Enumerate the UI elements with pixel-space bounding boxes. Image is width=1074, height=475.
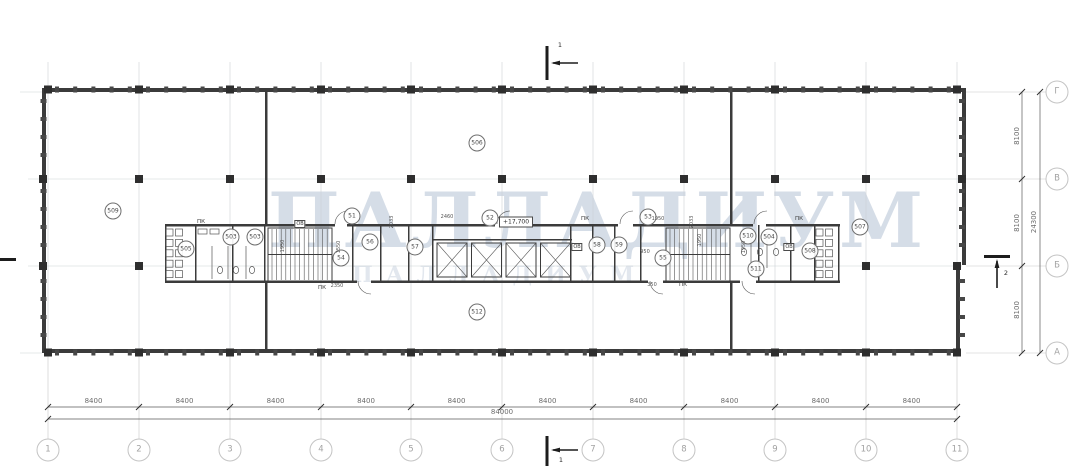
annotation-1950: 1950 [697,234,703,247]
room-bubble-503: 503 [247,229,264,246]
annotation-1550: 1550 [336,241,342,254]
axis-bubble-col-2: 2 [128,439,151,462]
annotation-1950: 1950 [280,240,286,253]
room-bubble-51: 51 [344,208,361,225]
axis-bubble-col-5: 5 [400,439,423,462]
axis-bubble-row-В: В [1046,168,1069,191]
labels-layer: 1 1 2 +17,700 84000 24300 50950550350351… [0,0,1074,475]
row-dimension: 8100 [1013,127,1021,145]
annotation-ПК: ПК [795,216,803,222]
room-bubble-509: 509 [105,203,122,220]
row-dimension: 8100 [1013,301,1021,319]
annotation-2033: 2033 [389,216,395,229]
bay-dimension: 8400 [721,397,739,405]
axis-bubble-col-11: 11 [946,439,969,462]
section-marker-top-label: 1 [558,41,562,49]
bay-dimension: 8400 [539,397,557,405]
axis-bubble-col-6: 6 [491,439,514,462]
annotation-ОВ: ОВ [783,243,794,251]
floor-plan-canvas: ПАЛЛАДИУМ ПАЛЛАДИУМ 1 1 2 +17,700 84000 … [0,0,1074,475]
room-bubble-52: 52 [482,210,499,227]
annotation-ПК: ПК [581,216,589,222]
bay-dimension: 8400 [630,397,648,405]
axis-bubble-row-Г: Г [1046,81,1069,104]
bay-dimension: 8400 [357,397,375,405]
room-bubble-59: 59 [611,237,628,254]
room-bubble-504: 504 [761,229,778,246]
bay-dimension: 8400 [85,397,103,405]
axis-bubble-col-8: 8 [673,439,696,462]
bay-dimension: 8400 [176,397,194,405]
annotation-ПК: ПК [318,285,326,291]
axis-bubble-col-3: 3 [219,439,242,462]
bay-dimension: 8400 [448,397,466,405]
section-marker-right-label: 2 [1004,269,1008,277]
room-bubble-55: 55 [655,250,672,267]
axis-bubble-col-4: 4 [310,439,333,462]
bay-dimension: 8400 [903,397,921,405]
room-bubble-512: 512 [469,304,486,321]
axis-bubble-col-10: 10 [855,439,878,462]
room-bubble-511: 511 [748,261,765,278]
row-dimension: 8100 [1013,214,1021,232]
room-bubble-58: 58 [589,237,606,254]
axis-bubble-col-9: 9 [764,439,787,462]
room-bubble-506: 506 [469,135,486,152]
room-bubble-507: 507 [852,219,869,236]
axis-bubble-col-7: 7 [582,439,605,462]
annotation-950: 950 [640,249,650,255]
axis-bubble-row-Б: Б [1046,255,1069,278]
room-bubble-505: 505 [178,241,195,258]
annotation-2460: 2460 [441,214,454,220]
annotation-ОВ: ОВ [294,220,305,228]
annotation-350: 350 [647,282,657,288]
annotation-ПК: ПК [679,282,687,288]
total-width-dimension: 84000 [491,408,513,416]
room-bubble-56: 56 [362,234,379,251]
annotation-2033: 2033 [689,216,695,229]
annotation-ОВ: ОВ [571,243,582,251]
bay-dimension: 8400 [812,397,830,405]
axis-bubble-col-1: 1 [37,439,60,462]
annotation-ПК: ПК [197,219,205,225]
annotation-1950: 1950 [652,216,665,222]
bay-dimension: 8400 [267,397,285,405]
axis-bubble-row-А: А [1046,342,1069,365]
annotation-2350: 2350 [331,283,344,289]
elevation-mark: +17,700 [499,217,533,228]
section-marker-bottom-label: 1 [559,456,563,464]
total-height-dimension: 24300 [1030,211,1038,233]
room-bubble-57: 57 [407,239,424,256]
room-bubble-503: 503 [223,229,240,246]
room-bubble-508: 508 [802,243,819,260]
annotation-1950: 1950 [741,241,747,254]
